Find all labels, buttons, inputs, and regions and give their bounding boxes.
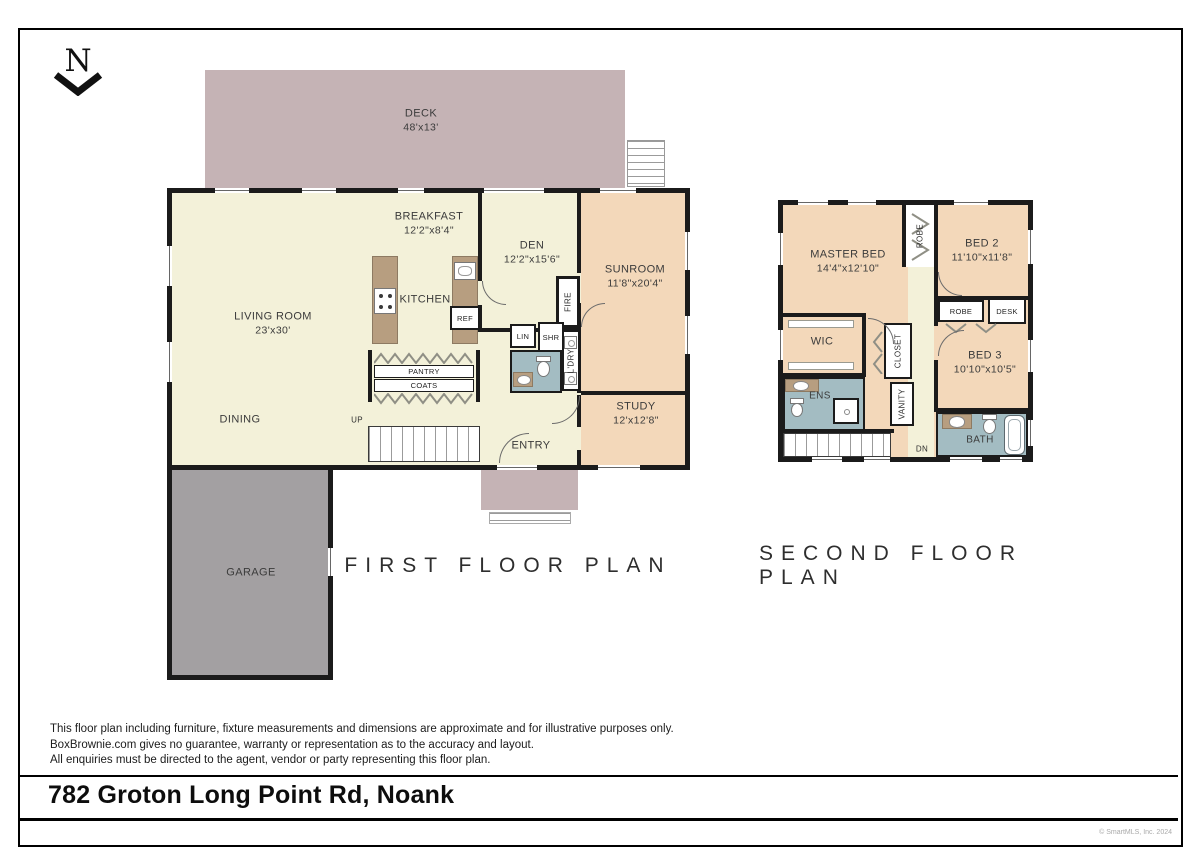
window — [798, 200, 828, 205]
room-dims: 23'x30' — [234, 324, 312, 338]
room-label-sunroom: SUNROOM 11'8"x20'4" — [605, 264, 665, 291]
disclaimer: This floor plan including furniture, fix… — [50, 722, 674, 769]
first-floor-title: FIRST FLOOR PLAN — [344, 554, 671, 578]
second-floor-title: SECOND FLOOR PLAN — [759, 542, 1053, 590]
window — [864, 457, 890, 462]
room-label-wic: WIC — [811, 335, 834, 349]
room-name: BED 2 — [952, 238, 1013, 252]
sunroom-zone — [581, 193, 685, 393]
room-name: SUNROOM — [605, 264, 665, 278]
pantry-label: PANTRY — [408, 367, 440, 376]
window — [685, 232, 690, 270]
room-dims: 48'x13' — [403, 121, 438, 135]
linen-closet: LIN — [510, 324, 536, 348]
vanity-label: VANITY — [898, 389, 907, 420]
wall — [167, 675, 333, 680]
window — [398, 188, 424, 193]
room-name: DEN — [504, 240, 560, 254]
room-name: ENTRY — [511, 439, 550, 453]
wall — [368, 350, 372, 402]
wall — [778, 429, 894, 433]
window — [1028, 420, 1033, 446]
wall — [476, 350, 480, 402]
copyright-credit: © SmartMLS, Inc. 2024 — [1020, 829, 1172, 836]
room-label-study: STUDY 12'x12'8" — [613, 401, 659, 428]
room-label-garage: GARAGE — [226, 566, 275, 580]
room-dims: 12'2"x8'4" — [395, 224, 463, 238]
hanging-rail-icon — [374, 393, 474, 405]
room-dims: 11'8"x20'4" — [605, 277, 665, 291]
north-arrow-icon: N — [50, 46, 106, 96]
room-name: BED 3 — [954, 350, 1016, 364]
window — [950, 457, 982, 462]
room-name: MASTER BED — [810, 249, 886, 263]
window — [215, 188, 249, 193]
room-label-dining: DINING — [220, 413, 261, 427]
window — [598, 465, 640, 470]
wall — [778, 373, 866, 377]
disclaimer-line: All enquiries must be directed to the ag… — [50, 753, 674, 769]
bathtub-icon — [1004, 415, 1025, 455]
address-title: 782 Groton Long Point Rd, Noank — [48, 781, 454, 810]
divider — [20, 818, 1178, 821]
robe-label: ROBE — [950, 307, 972, 316]
room-name: LIVING ROOM — [234, 311, 312, 325]
wall — [478, 193, 482, 281]
window — [778, 330, 783, 360]
room-label-kitchen: KITCHEN — [399, 293, 450, 307]
shower-icon — [833, 398, 859, 424]
closet-label: CLOSET — [894, 334, 903, 368]
window — [848, 200, 876, 205]
floor-plan-page: { "header": { "north_letter": "N" }, "fi… — [0, 0, 1200, 848]
dryer-icon — [564, 372, 577, 385]
porch-steps — [489, 512, 571, 524]
wall — [577, 193, 581, 273]
desk-label: DESK — [996, 307, 1018, 316]
entry-door-opening — [497, 465, 537, 470]
window — [302, 188, 336, 193]
room-name: KITCHEN — [399, 293, 450, 307]
wall — [577, 450, 581, 465]
room-dims: 11'10"x11'8" — [952, 251, 1013, 265]
pantry-closet: PANTRY — [374, 365, 474, 378]
disclaimer-line: This floor plan including furniture, fix… — [50, 722, 674, 738]
disclaimer-line: BoxBrownie.com gives no guarantee, warra… — [50, 738, 674, 754]
wall — [167, 188, 172, 470]
room-label-deck: DECK 48'x13' — [403, 108, 438, 135]
wall — [934, 360, 938, 412]
fireplace-label: FIRE — [564, 292, 573, 312]
stairs-down — [783, 433, 891, 457]
window — [778, 233, 783, 265]
wall — [902, 205, 906, 267]
closet-shelf — [788, 362, 854, 370]
sliding-door — [484, 188, 544, 193]
stove-icon — [374, 288, 396, 314]
wall — [778, 313, 866, 317]
ref-label: REF — [457, 314, 473, 323]
room-name: BREAKFAST — [395, 211, 463, 225]
toilet-icon — [536, 356, 551, 377]
room-name: BATH — [966, 433, 994, 447]
window — [685, 316, 690, 354]
hanging-rail-icon — [374, 352, 474, 364]
desk-nook: DESK — [988, 298, 1026, 324]
sink-icon — [946, 414, 966, 429]
window — [1028, 230, 1033, 264]
deck-steps — [627, 140, 665, 187]
shower-box: SHR — [538, 322, 564, 352]
wall — [862, 313, 866, 377]
room-dims: 12'2"x15'6" — [504, 253, 560, 267]
washer-icon — [564, 336, 577, 349]
room-dims: 12'x12'8" — [613, 414, 659, 428]
room-label-ens: ENS — [809, 389, 831, 403]
wall — [934, 205, 938, 300]
room-dims: 14'4"x12'10" — [810, 262, 886, 276]
laundry-label: L'DRY — [567, 349, 576, 374]
up-label: UP — [351, 416, 363, 425]
kitchen-sink-icon — [454, 262, 476, 280]
coats-label: COATS — [411, 381, 438, 390]
room-name: ENS — [809, 389, 831, 403]
room-name: WIC — [811, 335, 834, 349]
window — [1028, 340, 1033, 372]
entry-porch-zone — [481, 470, 578, 510]
window — [600, 188, 636, 193]
sink-icon — [790, 379, 810, 392]
wall — [167, 470, 172, 680]
room-label-master-bed: MASTER BED 14'4"x12'10" — [810, 249, 886, 276]
room-name: DECK — [403, 108, 438, 122]
toilet-icon — [790, 398, 804, 417]
lin-label: LIN — [517, 332, 530, 341]
window — [167, 246, 172, 286]
divider — [20, 775, 1178, 777]
dn-label: DN — [916, 445, 928, 454]
stairs-up — [368, 426, 480, 462]
window — [167, 342, 172, 382]
window — [812, 457, 842, 462]
room-label-den: DEN 12'2"x15'6" — [504, 240, 560, 267]
robe-closet: ROBE — [938, 300, 984, 322]
room-name: DINING — [220, 413, 261, 427]
room-label-living-room: LIVING ROOM 23'x30' — [234, 311, 312, 338]
wall — [934, 408, 1028, 412]
window — [1000, 457, 1022, 462]
room-label-bed2: BED 2 11'10"x11'8" — [952, 238, 1013, 265]
room-name: STUDY — [613, 401, 659, 415]
room-name: GARAGE — [226, 566, 275, 580]
refrigerator-icon: REF — [450, 306, 480, 330]
room-label-bath: BATH — [966, 433, 994, 447]
robe-label: ROBE — [916, 224, 925, 248]
room-label-bed3: BED 3 10'10"x10'5" — [954, 350, 1016, 377]
coats-closet: COATS — [374, 379, 474, 392]
sink-icon — [513, 372, 533, 387]
wall — [581, 391, 685, 395]
garage-door-opening — [328, 548, 333, 576]
shr-label: SHR — [543, 333, 560, 342]
room-label-breakfast: BREAKFAST 12'2"x8'4" — [395, 211, 463, 238]
window — [954, 200, 988, 205]
room-dims: 10'10"x10'5" — [954, 363, 1016, 377]
toilet-icon — [982, 414, 997, 434]
closet-shelf — [788, 320, 854, 328]
room-label-entry: ENTRY — [511, 439, 550, 453]
